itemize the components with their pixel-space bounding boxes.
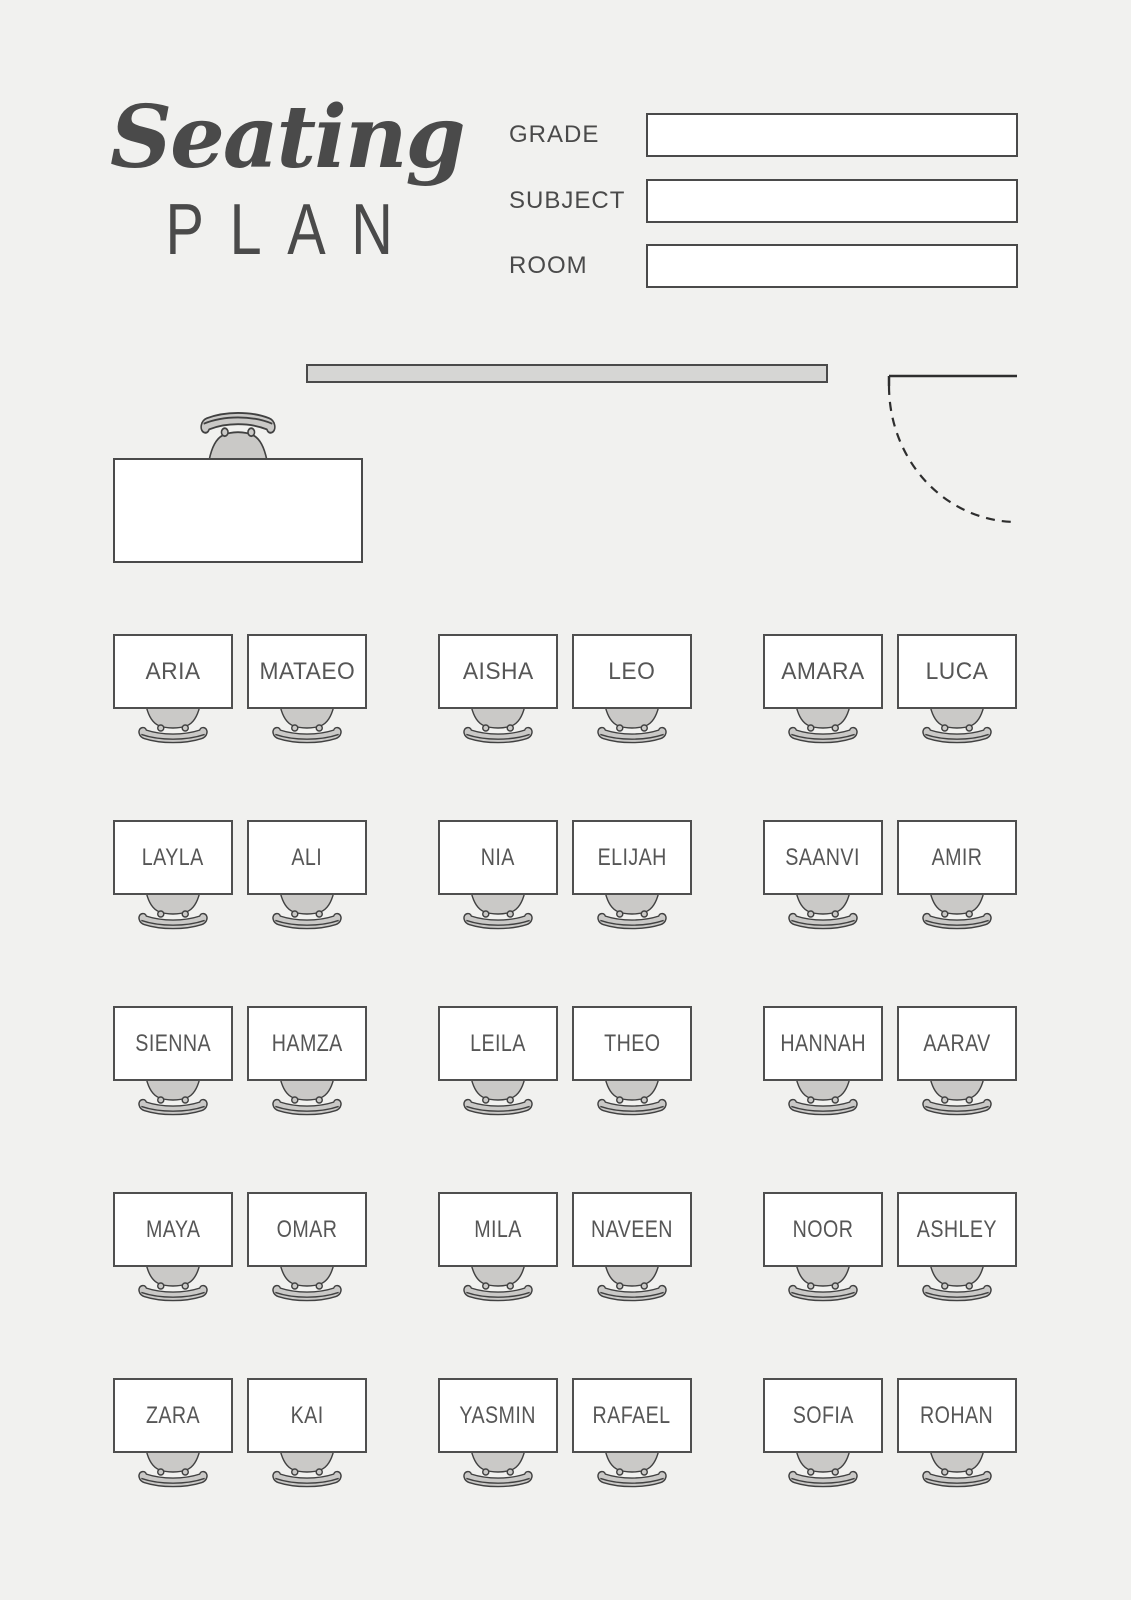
student-desk: NAVEEN bbox=[572, 1192, 692, 1302]
student-name: RAFAEL bbox=[593, 1402, 671, 1430]
room-field[interactable] bbox=[646, 244, 1018, 288]
desk-pair: YASMIN RAFAEL bbox=[438, 1378, 692, 1488]
student-desk: HANNAH bbox=[763, 1006, 883, 1116]
student-name: AMARA bbox=[781, 658, 864, 686]
desk-nameplate[interactable]: MATAEO bbox=[247, 634, 367, 709]
student-desk: OMAR bbox=[247, 1192, 367, 1302]
desk-nameplate[interactable]: ASHLEY bbox=[897, 1192, 1017, 1267]
chair-icon bbox=[921, 1451, 993, 1488]
desk-nameplate[interactable]: AMARA bbox=[763, 634, 883, 709]
student-name: SOFIA bbox=[792, 1402, 853, 1430]
chair-icon bbox=[271, 1265, 343, 1302]
student-name: ROHAN bbox=[920, 1402, 993, 1430]
desk-pair: SOFIA ROHAN bbox=[763, 1378, 1017, 1488]
student-name: NOOR bbox=[793, 1216, 854, 1244]
student-name: LEILA bbox=[470, 1030, 526, 1058]
desk-pair: HANNAH AARAV bbox=[763, 1006, 1017, 1116]
desk-pair: AISHA LEO bbox=[438, 634, 692, 744]
desk-nameplate[interactable]: LAYLA bbox=[113, 820, 233, 895]
student-name: ASHLEY bbox=[917, 1216, 997, 1244]
chair-icon bbox=[596, 1451, 668, 1488]
student-name: LAYLA bbox=[142, 844, 204, 872]
student-desk: SAANVI bbox=[763, 820, 883, 930]
desk-pair: SIENNA HAMZA bbox=[113, 1006, 367, 1116]
student-desk: LAYLA bbox=[113, 820, 233, 930]
student-desk: AARAV bbox=[897, 1006, 1017, 1116]
student-name: SAANVI bbox=[786, 844, 861, 872]
student-desk: AMIR bbox=[897, 820, 1017, 930]
student-desk: LEILA bbox=[438, 1006, 558, 1116]
chair-icon bbox=[271, 1451, 343, 1488]
desk-nameplate[interactable]: THEO bbox=[572, 1006, 692, 1081]
desk-nameplate[interactable]: SAANVI bbox=[763, 820, 883, 895]
desk-nameplate[interactable]: ELIJAH bbox=[572, 820, 692, 895]
student-name: NIA bbox=[481, 844, 515, 872]
desk-nameplate[interactable]: LEILA bbox=[438, 1006, 558, 1081]
desk-nameplate[interactable]: LUCA bbox=[897, 634, 1017, 709]
chair-icon bbox=[462, 1079, 534, 1116]
seating-plan-page: Seating PLAN GRADE SUBJECT ROOM ARIA bbox=[0, 0, 1131, 1600]
student-name: HANNAH bbox=[780, 1030, 866, 1058]
desk-row: SIENNA HAMZA bbox=[113, 1006, 1017, 1116]
page-title-sub: PLAN bbox=[159, 194, 425, 266]
seating-grid: ARIA MATAEO bbox=[113, 634, 1017, 1488]
chair-icon bbox=[462, 893, 534, 930]
student-desk: ELIJAH bbox=[572, 820, 692, 930]
chair-icon bbox=[596, 893, 668, 930]
student-desk: YASMIN bbox=[438, 1378, 558, 1488]
chair-icon bbox=[787, 1451, 859, 1488]
student-desk: MILA bbox=[438, 1192, 558, 1302]
student-desk: ALI bbox=[247, 820, 367, 930]
chair-icon bbox=[462, 707, 534, 744]
title-block: Seating PLAN bbox=[110, 84, 458, 266]
desk-nameplate[interactable]: YASMIN bbox=[438, 1378, 558, 1453]
desk-pair: LEILA THEO bbox=[438, 1006, 692, 1116]
teacher-chair-icon bbox=[199, 411, 277, 460]
room-label: ROOM bbox=[509, 244, 644, 288]
desk-nameplate[interactable]: HANNAH bbox=[763, 1006, 883, 1081]
student-name: ELIJAH bbox=[597, 844, 666, 872]
chair-icon bbox=[271, 893, 343, 930]
student-name: KAI bbox=[291, 1402, 324, 1430]
whiteboard bbox=[306, 364, 828, 383]
chair-icon bbox=[787, 1265, 859, 1302]
desk-nameplate[interactable]: ARIA bbox=[113, 634, 233, 709]
desk-nameplate[interactable]: KAI bbox=[247, 1378, 367, 1453]
desk-pair: ZARA KAI bbox=[113, 1378, 367, 1488]
chair-icon bbox=[271, 707, 343, 744]
student-desk: AISHA bbox=[438, 634, 558, 744]
student-desk: ASHLEY bbox=[897, 1192, 1017, 1302]
student-name: ARIA bbox=[145, 658, 200, 686]
student-desk: ARIA bbox=[113, 634, 233, 744]
student-name: AISHA bbox=[463, 658, 534, 686]
student-name: LUCA bbox=[926, 658, 989, 686]
student-name: MAYA bbox=[146, 1216, 200, 1244]
desk-nameplate[interactable]: AISHA bbox=[438, 634, 558, 709]
grade-label: GRADE bbox=[509, 113, 644, 157]
desk-nameplate[interactable]: NOOR bbox=[763, 1192, 883, 1267]
student-name: LEO bbox=[608, 658, 655, 686]
chair-icon bbox=[137, 707, 209, 744]
desk-nameplate[interactable]: AMIR bbox=[897, 820, 1017, 895]
desk-row: ZARA KAI bbox=[113, 1378, 1017, 1488]
student-name: ZARA bbox=[146, 1402, 200, 1430]
desk-row: LAYLA ALI bbox=[113, 820, 1017, 930]
chair-icon bbox=[137, 1265, 209, 1302]
desk-nameplate[interactable]: ALI bbox=[247, 820, 367, 895]
desk-nameplate[interactable]: OMAR bbox=[247, 1192, 367, 1267]
chair-icon bbox=[137, 1079, 209, 1116]
desk-nameplate[interactable]: AARAV bbox=[897, 1006, 1017, 1081]
teacher-desk bbox=[113, 458, 363, 563]
desk-pair: NOOR ASHLEY bbox=[763, 1192, 1017, 1302]
student-desk: SIENNA bbox=[113, 1006, 233, 1116]
student-name: MILA bbox=[474, 1216, 522, 1244]
chair-icon bbox=[921, 1079, 993, 1116]
door-swing-icon bbox=[884, 368, 1024, 530]
chair-icon bbox=[137, 1451, 209, 1488]
desk-nameplate[interactable]: SIENNA bbox=[113, 1006, 233, 1081]
chair-icon bbox=[596, 1079, 668, 1116]
chair-icon bbox=[921, 893, 993, 930]
chair-icon bbox=[596, 1265, 668, 1302]
student-desk: NOOR bbox=[763, 1192, 883, 1302]
grade-field[interactable] bbox=[646, 113, 1018, 157]
subject-field[interactable] bbox=[646, 179, 1018, 223]
student-desk: SOFIA bbox=[763, 1378, 883, 1488]
chair-icon bbox=[921, 1265, 993, 1302]
student-desk: KAI bbox=[247, 1378, 367, 1488]
desk-nameplate[interactable]: RAFAEL bbox=[572, 1378, 692, 1453]
desk-nameplate[interactable]: NIA bbox=[438, 820, 558, 895]
student-desk: ZARA bbox=[113, 1378, 233, 1488]
student-name: NAVEEN bbox=[591, 1216, 673, 1244]
subject-label: SUBJECT bbox=[509, 179, 644, 223]
chair-icon bbox=[787, 1079, 859, 1116]
desk-pair: LAYLA ALI bbox=[113, 820, 367, 930]
student-desk: RAFAEL bbox=[572, 1378, 692, 1488]
desk-pair: ARIA MATAEO bbox=[113, 634, 367, 744]
desk-nameplate[interactable]: MILA bbox=[438, 1192, 558, 1267]
desk-pair: NIA ELIJAH bbox=[438, 820, 692, 930]
chair-icon bbox=[596, 707, 668, 744]
student-desk: NIA bbox=[438, 820, 558, 930]
desk-pair: AMARA LUCA bbox=[763, 634, 1017, 744]
desk-row: ARIA MATAEO bbox=[113, 634, 1017, 744]
desk-pair: MILA NAVEEN bbox=[438, 1192, 692, 1302]
chair-icon bbox=[137, 893, 209, 930]
desk-nameplate[interactable]: ZARA bbox=[113, 1378, 233, 1453]
chair-icon bbox=[921, 707, 993, 744]
desk-nameplate[interactable]: NAVEEN bbox=[572, 1192, 692, 1267]
chair-icon bbox=[787, 707, 859, 744]
desk-row: MAYA OMAR bbox=[113, 1192, 1017, 1302]
desk-nameplate[interactable]: LEO bbox=[572, 634, 692, 709]
student-name: OMAR bbox=[277, 1216, 338, 1244]
desk-nameplate[interactable]: MAYA bbox=[113, 1192, 233, 1267]
student-desk: THEO bbox=[572, 1006, 692, 1116]
student-desk: MAYA bbox=[113, 1192, 233, 1302]
student-name: AARAV bbox=[923, 1030, 990, 1058]
desk-pair: MAYA OMAR bbox=[113, 1192, 367, 1302]
student-name: YASMIN bbox=[460, 1402, 536, 1430]
desk-nameplate[interactable]: ROHAN bbox=[897, 1378, 1017, 1453]
student-name: AMIR bbox=[932, 844, 983, 872]
student-name: THEO bbox=[604, 1030, 660, 1058]
student-desk: AMARA bbox=[763, 634, 883, 744]
student-desk: MATAEO bbox=[247, 634, 367, 744]
student-desk: LUCA bbox=[897, 634, 1017, 744]
chair-icon bbox=[462, 1265, 534, 1302]
student-desk: ROHAN bbox=[897, 1378, 1017, 1488]
student-name: HAMZA bbox=[272, 1030, 343, 1058]
student-name: ALI bbox=[292, 844, 323, 872]
desk-pair: SAANVI AMIR bbox=[763, 820, 1017, 930]
chair-icon bbox=[787, 893, 859, 930]
page-title-script: Seating bbox=[110, 84, 458, 192]
chair-icon bbox=[462, 1451, 534, 1488]
student-desk: LEO bbox=[572, 634, 692, 744]
student-desk: HAMZA bbox=[247, 1006, 367, 1116]
desk-nameplate[interactable]: HAMZA bbox=[247, 1006, 367, 1081]
desk-nameplate[interactable]: SOFIA bbox=[763, 1378, 883, 1453]
student-name: MATAEO bbox=[259, 658, 355, 686]
student-name: SIENNA bbox=[135, 1030, 211, 1058]
chair-icon bbox=[271, 1079, 343, 1116]
